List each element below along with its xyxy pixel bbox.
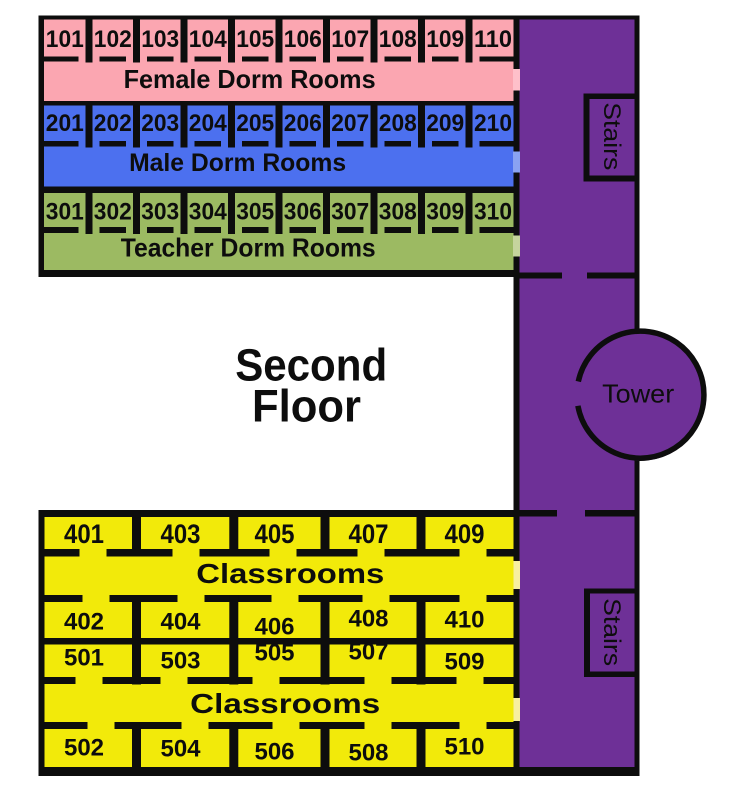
svg-text:405: 405	[255, 519, 295, 549]
svg-text:201: 201	[46, 110, 84, 137]
svg-text:310: 310	[474, 199, 512, 226]
svg-text:503: 503	[160, 648, 200, 675]
svg-text:504: 504	[160, 736, 201, 763]
svg-text:509: 509	[444, 649, 484, 676]
svg-text:103: 103	[141, 26, 179, 53]
svg-text:407: 407	[349, 519, 389, 549]
svg-text:106: 106	[284, 26, 322, 53]
svg-text:306: 306	[284, 199, 322, 226]
svg-text:408: 408	[348, 606, 388, 633]
svg-text:403: 403	[161, 519, 201, 549]
svg-text:308: 308	[379, 199, 417, 226]
svg-text:404: 404	[160, 609, 201, 636]
svg-text:304: 304	[189, 199, 228, 226]
svg-text:309: 309	[426, 199, 464, 226]
svg-text:410: 410	[444, 607, 484, 634]
svg-text:210: 210	[474, 110, 512, 137]
svg-text:301: 301	[46, 199, 84, 226]
svg-text:506: 506	[254, 739, 294, 766]
svg-text:505: 505	[254, 640, 294, 667]
svg-text:402: 402	[64, 609, 104, 636]
svg-text:102: 102	[94, 26, 132, 53]
svg-text:401: 401	[64, 519, 104, 549]
svg-text:Stairs: Stairs	[598, 102, 625, 170]
svg-text:202: 202	[94, 110, 132, 137]
svg-text:502: 502	[64, 735, 104, 762]
svg-text:205: 205	[236, 110, 274, 137]
svg-text:Teacher Dorm Rooms: Teacher Dorm Rooms	[121, 233, 376, 263]
svg-text:303: 303	[141, 199, 179, 226]
svg-text:Male Dorm Rooms: Male Dorm Rooms	[129, 149, 346, 177]
svg-text:107: 107	[331, 26, 369, 53]
svg-text:Floor: Floor	[252, 381, 361, 432]
svg-text:207: 207	[331, 110, 369, 137]
svg-text:101: 101	[46, 26, 84, 53]
svg-text:501: 501	[64, 645, 104, 672]
svg-text:Tower: Tower	[602, 378, 674, 408]
svg-text:108: 108	[379, 26, 417, 53]
svg-text:302: 302	[94, 199, 132, 226]
svg-text:204: 204	[189, 110, 228, 137]
svg-text:104: 104	[189, 26, 228, 53]
svg-text:406: 406	[254, 614, 294, 641]
svg-text:110: 110	[474, 26, 512, 53]
svg-text:Stairs: Stairs	[598, 598, 625, 666]
svg-text:203: 203	[141, 110, 179, 137]
svg-text:208: 208	[379, 110, 417, 137]
svg-text:209: 209	[426, 110, 464, 137]
svg-text:Classrooms: Classrooms	[190, 688, 380, 719]
svg-text:510: 510	[444, 734, 484, 761]
svg-text:307: 307	[331, 199, 369, 226]
svg-text:507: 507	[348, 639, 388, 666]
svg-text:508: 508	[348, 740, 388, 767]
svg-text:206: 206	[284, 110, 322, 137]
svg-text:109: 109	[426, 26, 464, 53]
svg-text:Female Dorm Rooms: Female Dorm Rooms	[124, 64, 376, 94]
svg-text:105: 105	[236, 26, 274, 53]
svg-text:305: 305	[236, 199, 274, 226]
svg-text:Classrooms: Classrooms	[196, 558, 384, 589]
svg-text:409: 409	[445, 519, 485, 549]
